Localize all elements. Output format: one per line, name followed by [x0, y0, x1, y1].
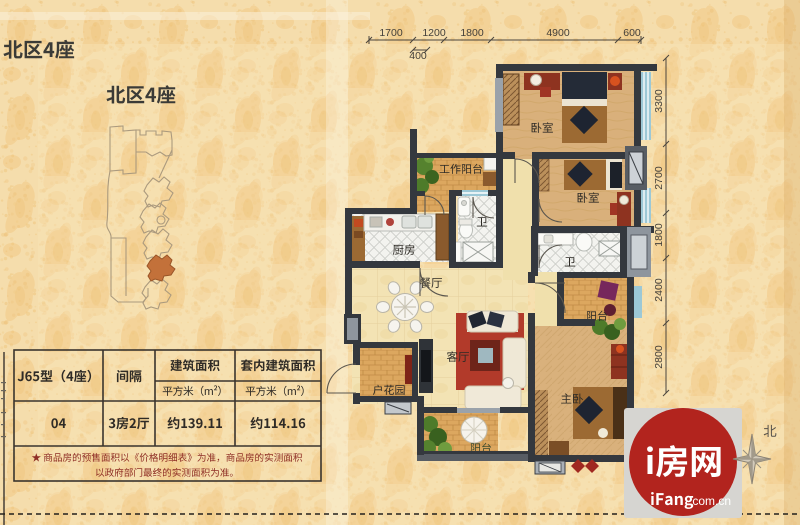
svg-text:1700: 1700	[379, 27, 403, 39]
svg-text:1200: 1200	[422, 27, 446, 39]
svg-text:.com.cn: .com.cn	[689, 494, 731, 508]
svg-text:400: 400	[409, 50, 427, 62]
svg-text:1800: 1800	[460, 27, 484, 39]
svg-text:2700: 2700	[653, 166, 665, 190]
svg-text:4900: 4900	[546, 27, 570, 39]
svg-text:3300: 3300	[653, 89, 665, 113]
svg-text:600: 600	[623, 27, 641, 39]
svg-text:1800: 1800	[653, 223, 665, 247]
svg-text:2400: 2400	[653, 278, 665, 302]
svg-text:2800: 2800	[653, 345, 665, 369]
